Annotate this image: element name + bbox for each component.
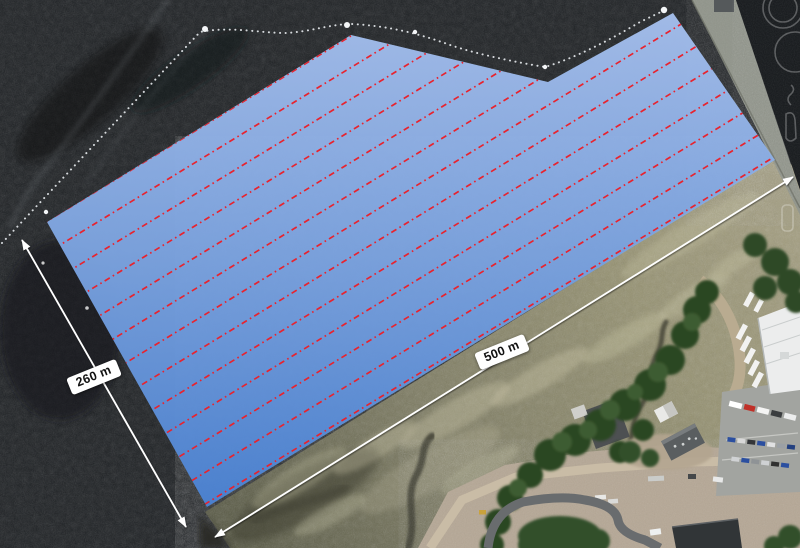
satellite-background bbox=[0, 0, 800, 548]
stray-buoy-dot bbox=[85, 306, 89, 310]
map-container: 260 m 500 m bbox=[0, 0, 800, 548]
bridge-abutment bbox=[714, 0, 734, 12]
stray-buoy-dot bbox=[41, 261, 44, 264]
